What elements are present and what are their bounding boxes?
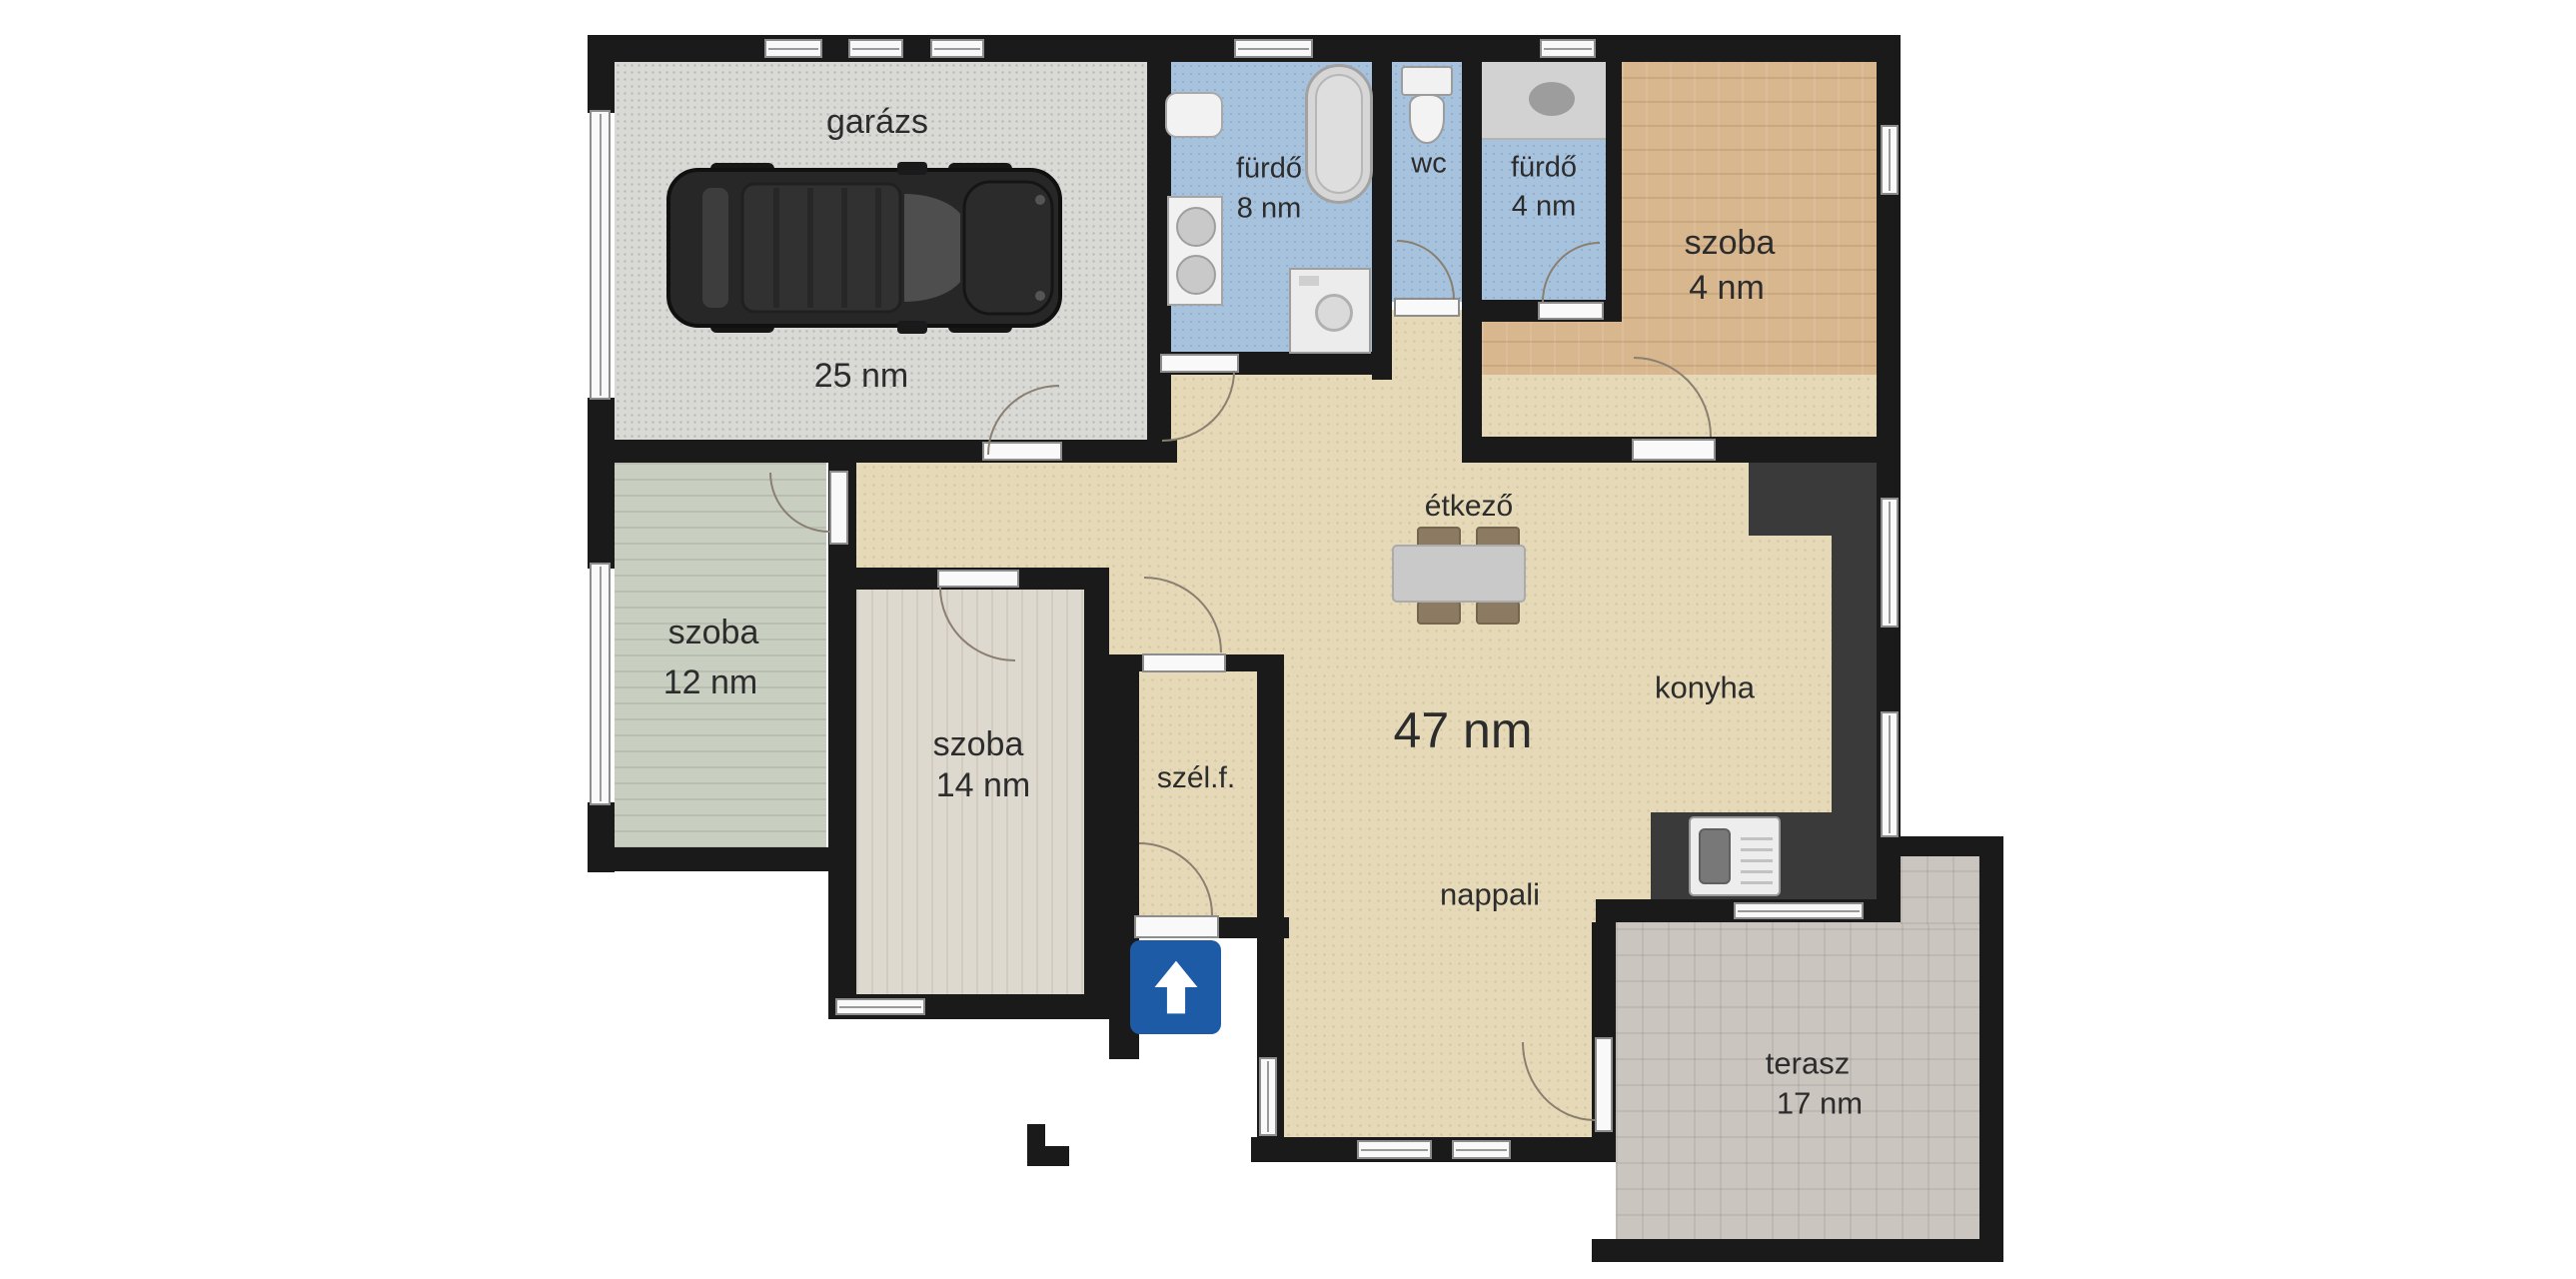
chair-icon	[1417, 601, 1461, 625]
window	[1259, 1057, 1277, 1136]
door-furdo4	[1538, 302, 1604, 320]
door-entrance	[1134, 915, 1219, 938]
window	[1881, 498, 1899, 628]
shower-basin	[1529, 82, 1575, 116]
door-szoba12	[829, 471, 848, 545]
sink-bowl	[1176, 207, 1216, 247]
washing-machine-icon	[1289, 268, 1371, 354]
room-area-szoba4: 4 nm	[1689, 271, 1765, 305]
bathtub-icon	[1305, 64, 1373, 204]
kitchen-sink-icon	[1689, 816, 1781, 896]
door-szoba4	[1632, 439, 1716, 461]
room-area-terasz: 17 nm	[1777, 1088, 1863, 1119]
room-label-etkezo: étkező	[1425, 492, 1513, 522]
room-area-szoba12: 12 nm	[663, 665, 758, 699]
room-label-szoba4: szoba	[1685, 226, 1776, 260]
window	[590, 563, 611, 805]
window	[1734, 902, 1864, 919]
shower-counter-icon	[1482, 62, 1606, 140]
wall	[588, 847, 851, 871]
wall	[588, 398, 615, 569]
wall	[588, 35, 615, 113]
entrance-arrow-icon	[1130, 940, 1221, 1034]
room-label-furdo8: fürdő	[1236, 155, 1302, 184]
wall	[1606, 35, 1622, 322]
wall	[1462, 35, 1482, 463]
wall	[1251, 1137, 1616, 1162]
wall	[1084, 568, 1109, 1019]
room-label-garazs: garázs	[826, 105, 928, 139]
room-area-szoba14: 14 nm	[936, 768, 1031, 802]
wall	[1592, 1239, 2003, 1262]
wall	[1979, 836, 2003, 1262]
wc-lobby-floor	[1392, 310, 1462, 380]
open-area-size: 47 nm	[1394, 705, 1533, 755]
washing-machine-drum	[1315, 294, 1353, 332]
room-label-szelf: szél.f.	[1157, 763, 1235, 793]
room-area-furdo4: 4 nm	[1512, 193, 1576, 222]
room-terasz-floor	[1616, 922, 1981, 1242]
window	[1881, 711, 1899, 837]
room-label-szoba12: szoba	[668, 616, 759, 649]
window	[835, 998, 925, 1015]
entrance-arrow-glyph	[1143, 952, 1209, 1022]
door-terasz	[1595, 1037, 1613, 1132]
toilet-icon	[1401, 66, 1453, 96]
window	[848, 39, 903, 58]
room-label-konyha: konyha	[1655, 672, 1755, 703]
room-label-wc: wc	[1411, 150, 1446, 179]
door-szoba14	[937, 570, 1019, 588]
window	[1234, 39, 1313, 58]
window	[1540, 39, 1596, 58]
kitchen-sink-drainer	[1741, 830, 1773, 884]
chair-icon	[1476, 601, 1520, 625]
sink-bowl	[1176, 255, 1216, 295]
room-area-garazs: 25 nm	[814, 359, 909, 393]
door-wc	[1394, 298, 1460, 317]
wall	[588, 440, 1177, 463]
room-terasz-floor	[1901, 854, 1981, 924]
wall-corner-mark	[1027, 1146, 1069, 1166]
bathroom-shelf-icon	[1165, 92, 1223, 138]
terrace-slider-window	[1357, 1140, 1432, 1159]
room-label-szoba14: szoba	[933, 727, 1024, 761]
window	[930, 39, 984, 58]
double-sink-icon	[1167, 196, 1223, 306]
window	[764, 39, 822, 58]
room-label-nappali: nappali	[1440, 879, 1540, 910]
window	[1881, 125, 1899, 195]
car-icon	[663, 162, 1065, 334]
room-label-furdo4: fürdő	[1511, 154, 1577, 183]
wall	[1372, 35, 1392, 380]
door-szelf-inner	[1142, 653, 1226, 672]
toilet-bowl	[1409, 94, 1445, 144]
room-label-terasz: terasz	[1766, 1048, 1850, 1079]
garage-door-opening	[590, 110, 611, 400]
bathtub-inner	[1315, 74, 1363, 194]
dining-table-icon	[1392, 545, 1526, 603]
kitchen-sink-basin	[1699, 828, 1731, 884]
terrace-slider-window	[1452, 1140, 1511, 1159]
washing-machine-panel	[1299, 276, 1319, 286]
floorplan-canvas: garázs 25 nm fürdő 8 nm wc fürdő 4 nm sz…	[0, 0, 2576, 1279]
room-area-furdo8: 8 nm	[1237, 195, 1301, 224]
